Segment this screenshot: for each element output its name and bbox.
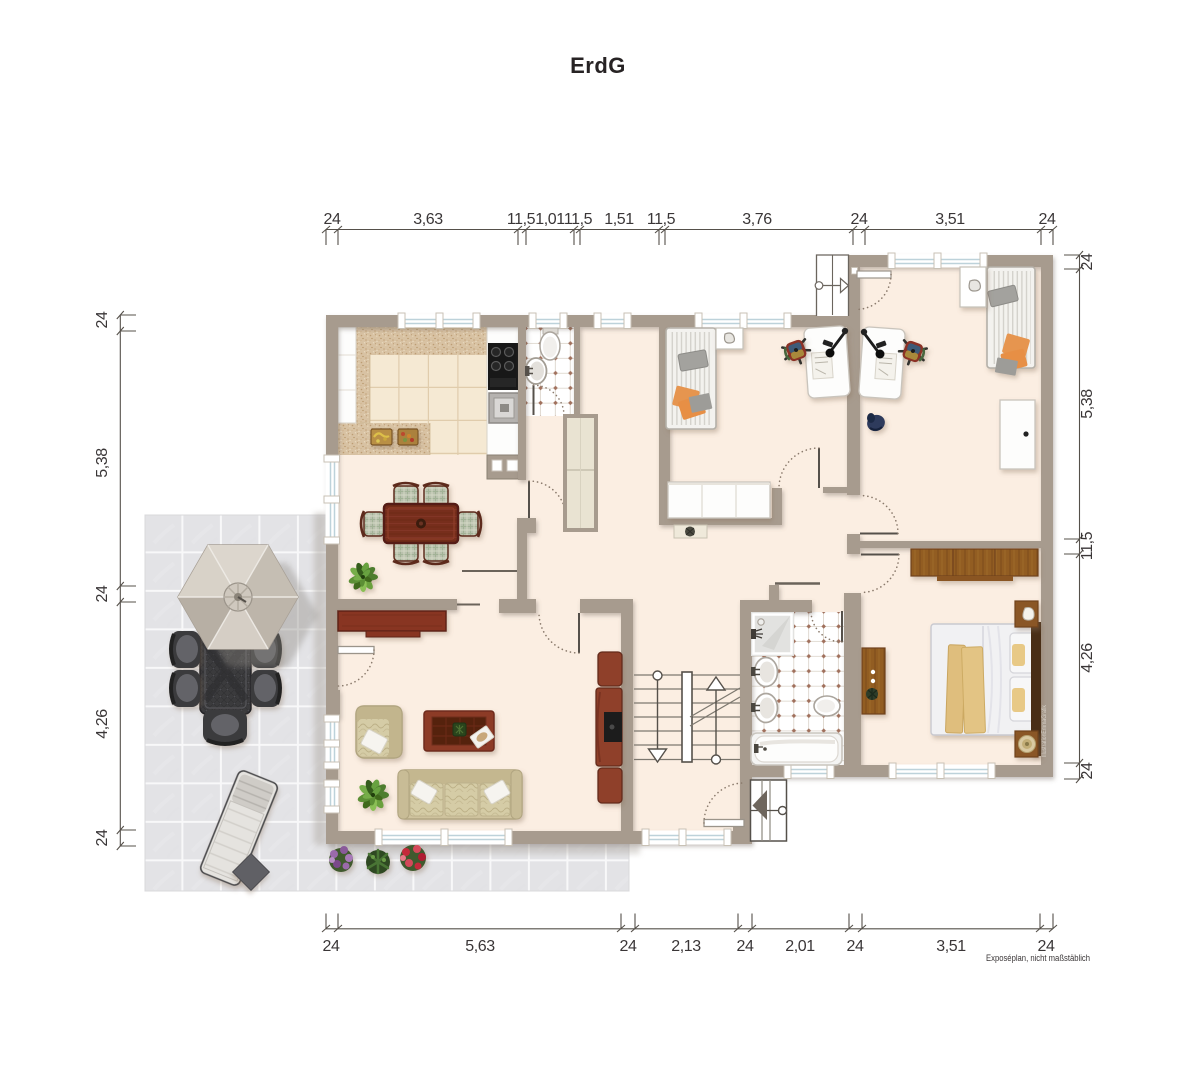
svg-text:1,01: 1,01 [535,211,565,228]
svg-text:24: 24 [620,938,637,955]
svg-text:24: 24 [737,938,754,955]
svg-text:11,5: 11,5 [647,211,676,228]
svg-text:24: 24 [1079,253,1096,270]
svg-text:11,5: 11,5 [507,211,536,228]
svg-text:11,5: 11,5 [1079,531,1096,560]
svg-text:24: 24 [323,938,340,955]
svg-text:4,26: 4,26 [94,709,111,739]
svg-text:ErdG: ErdG [570,53,626,78]
svg-text:1,51: 1,51 [604,211,634,228]
svg-text:24: 24 [94,585,111,602]
svg-text:Exposéplan, nicht maßstäblich: Exposéplan, nicht maßstäblich [986,953,1090,963]
svg-text:24: 24 [851,211,868,228]
svg-text:2,01: 2,01 [785,938,815,955]
svg-text:24: 24 [1039,211,1056,228]
svg-text:5,63: 5,63 [465,938,495,955]
svg-text:5,38: 5,38 [1079,389,1096,419]
svg-text:24: 24 [94,311,111,328]
svg-text:24: 24 [1079,762,1096,779]
svg-text:11,5: 11,5 [564,211,593,228]
svg-text:3,51: 3,51 [935,211,965,228]
svg-text:4,26: 4,26 [1079,643,1096,673]
svg-text:3,51: 3,51 [936,938,966,955]
svg-text:IllustrationEmmaGrafik: IllustrationEmmaGrafik [1041,704,1048,757]
svg-text:3,76: 3,76 [742,211,772,228]
svg-text:3,63: 3,63 [413,211,443,228]
svg-text:24: 24 [847,938,864,955]
svg-text:5,38: 5,38 [94,448,111,478]
svg-text:24: 24 [324,211,341,228]
svg-text:2,13: 2,13 [671,938,701,955]
svg-text:24: 24 [94,829,111,846]
